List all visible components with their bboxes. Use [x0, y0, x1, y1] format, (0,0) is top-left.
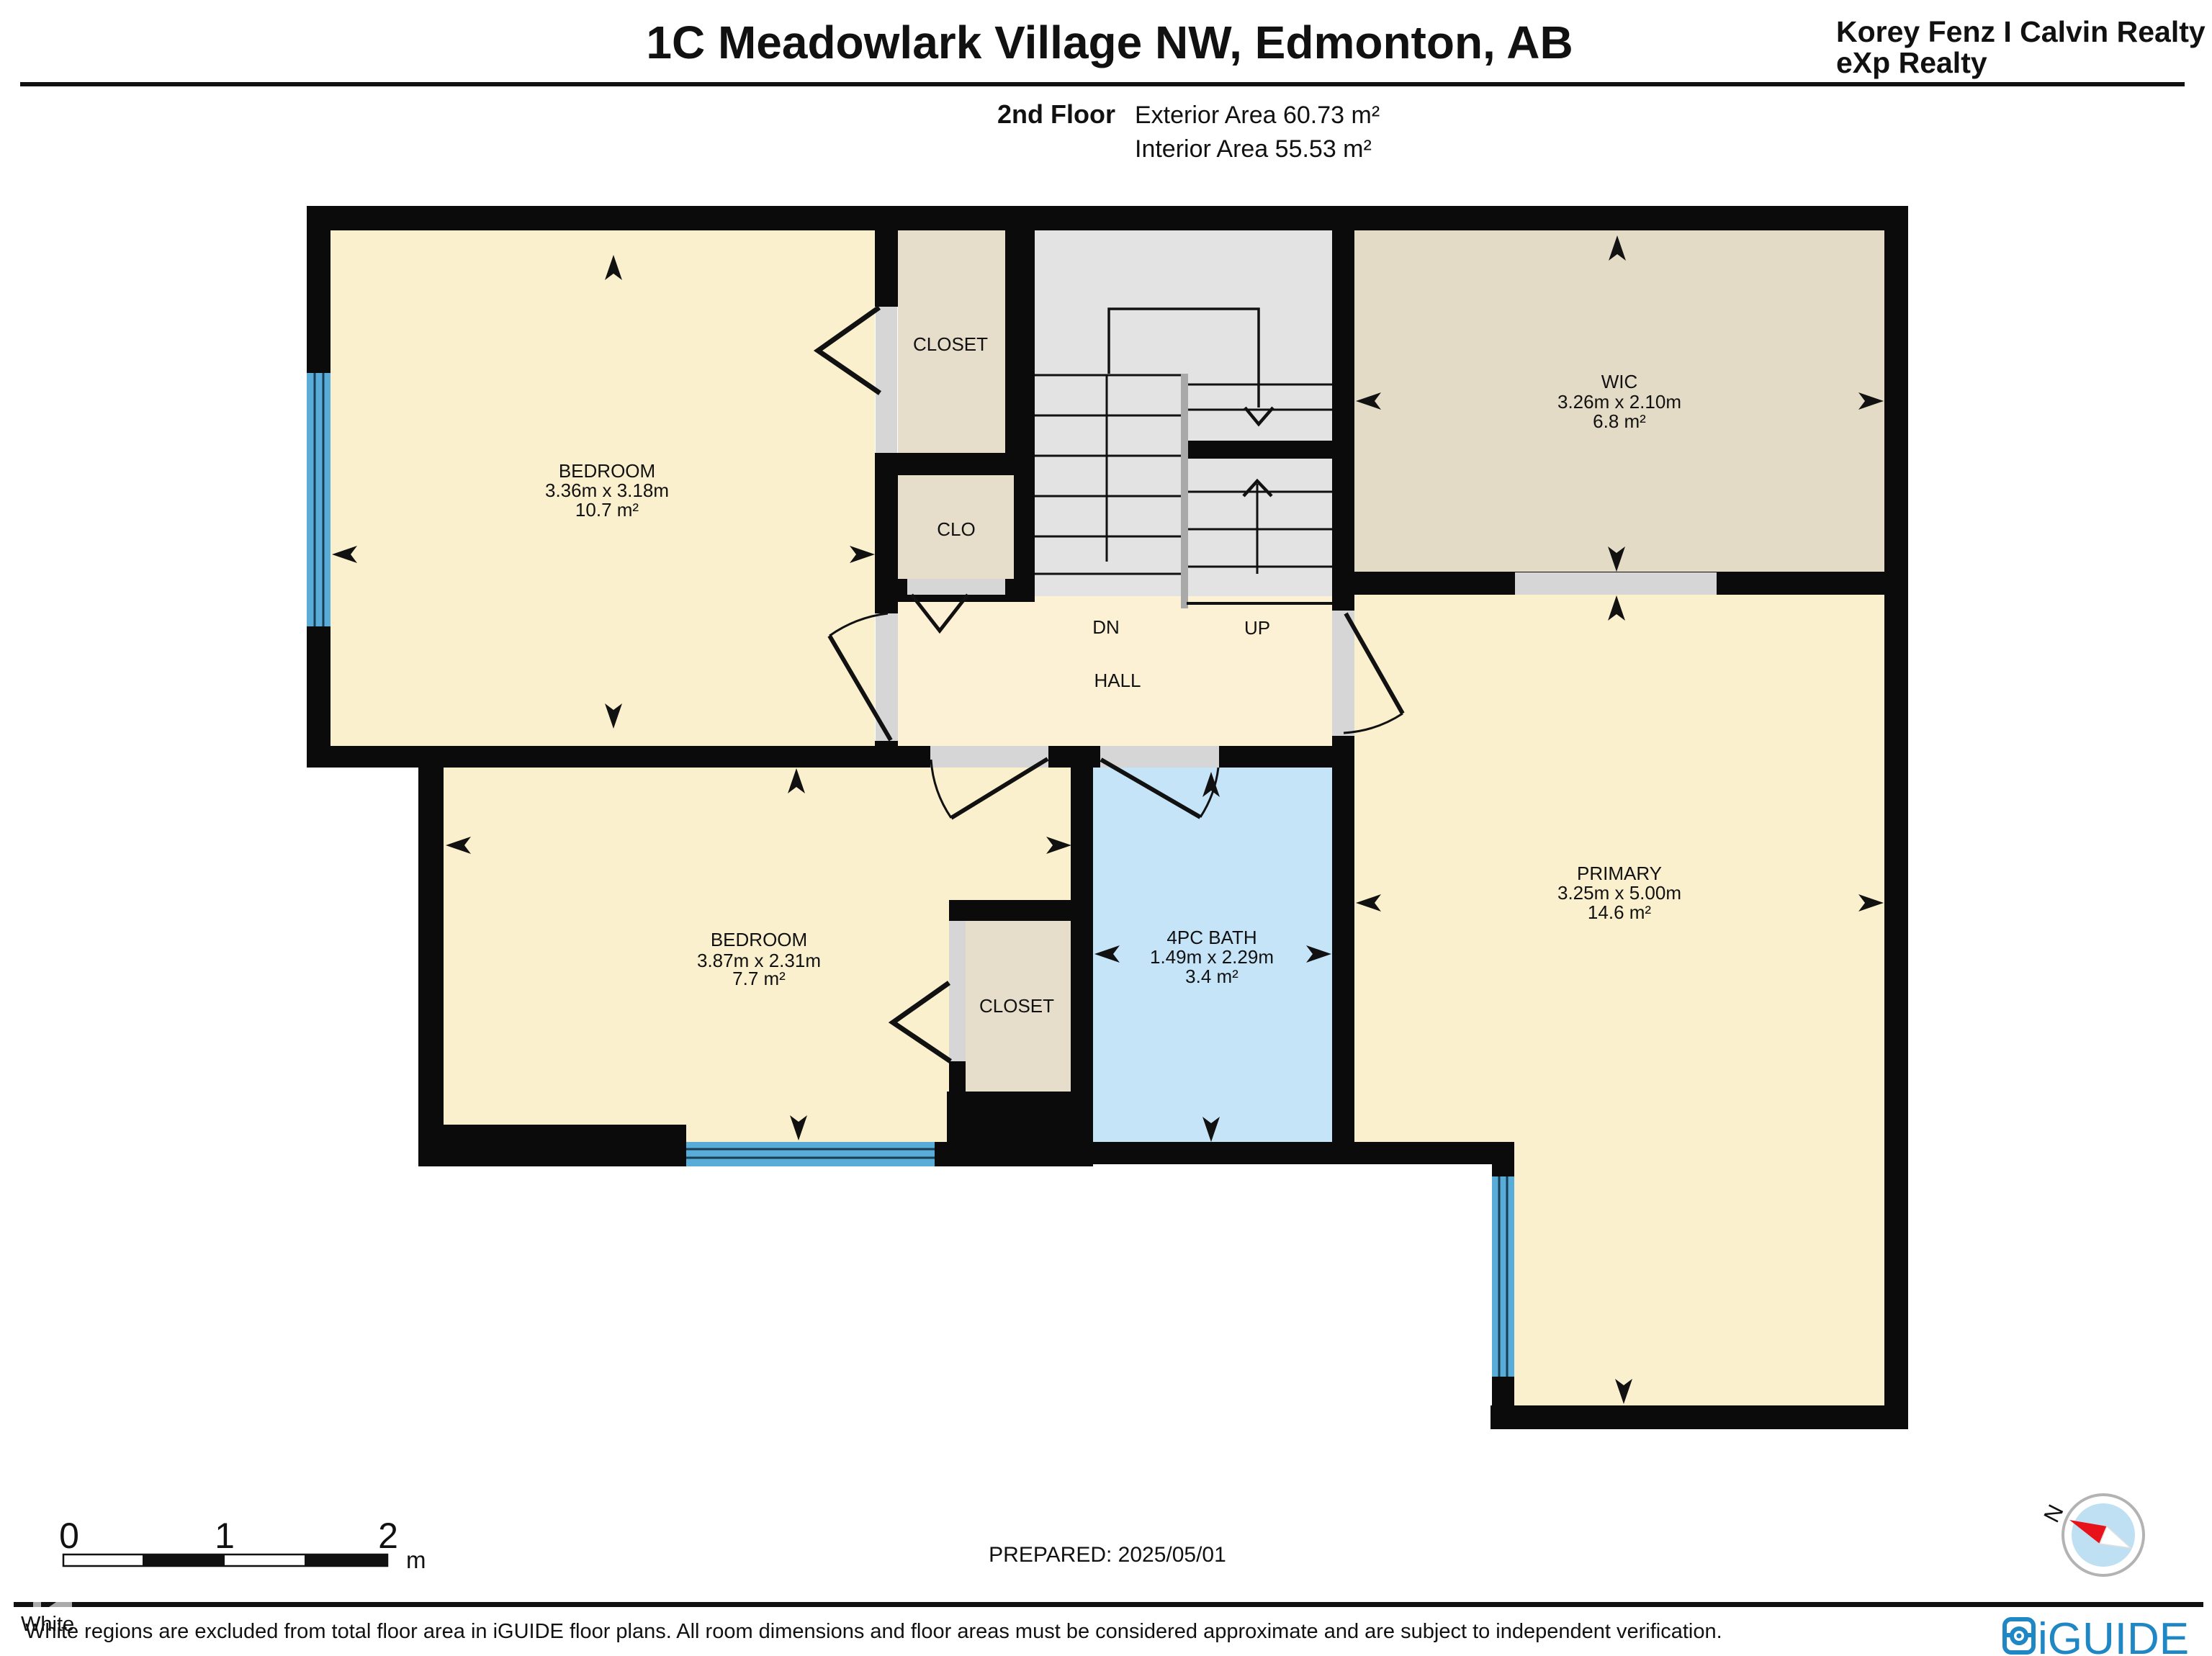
- svg-text:iGUIDE: iGUIDE: [2038, 1614, 2189, 1656]
- svg-text:7.7 m²: 7.7 m²: [732, 968, 786, 989]
- svg-text:3.4 m²: 3.4 m²: [1185, 966, 1238, 987]
- svg-text:HALL: HALL: [1094, 670, 1141, 691]
- svg-text:1C Meadowlark Village NW, Edmo: 1C Meadowlark Village NW, Edmonton, AB: [646, 17, 1573, 68]
- svg-text:Korey Fenz I Calvin Realty: Korey Fenz I Calvin Realty: [1836, 15, 2206, 48]
- svg-text:UP: UP: [1244, 617, 1270, 639]
- svg-text:m: m: [406, 1547, 426, 1573]
- svg-text:2: 2: [378, 1516, 398, 1556]
- svg-text:BEDROOM: BEDROOM: [711, 929, 807, 950]
- svg-text:6.8 m²: 6.8 m²: [1593, 410, 1646, 432]
- svg-text:PRIMARY: PRIMARY: [1577, 863, 1662, 884]
- svg-text:BEDROOM: BEDROOM: [559, 460, 655, 482]
- svg-text:WIC: WIC: [1601, 371, 1638, 392]
- svg-text:CLO: CLO: [937, 518, 975, 540]
- svg-text:PREPARED: 2025/05/01: PREPARED: 2025/05/01: [989, 1543, 1226, 1567]
- svg-text:Exterior Area 60.73 m²: Exterior Area 60.73 m²: [1135, 102, 1380, 129]
- svg-text:14.6 m²: 14.6 m²: [1588, 901, 1651, 923]
- svg-text:1: 1: [215, 1516, 235, 1556]
- svg-text:3.25m x 5.00m: 3.25m x 5.00m: [1557, 882, 1681, 904]
- svg-text:eXp Realty: eXp Realty: [1836, 46, 1987, 79]
- svg-text:CLOSET: CLOSET: [913, 333, 988, 355]
- svg-text:3.26m x 2.10m: 3.26m x 2.10m: [1557, 391, 1681, 413]
- svg-text:2nd Floor: 2nd Floor: [997, 99, 1115, 129]
- svg-text:1.49m x 2.29m: 1.49m x 2.29m: [1150, 946, 1274, 968]
- svg-text:DN: DN: [1092, 616, 1120, 638]
- svg-text:Interior Area 55.53 m²: Interior Area 55.53 m²: [1135, 135, 1372, 163]
- svg-text:0: 0: [59, 1516, 79, 1556]
- svg-text:White regions are excluded fro: White regions are excluded from total fl…: [25, 1620, 1722, 1643]
- svg-text:CLOSET: CLOSET: [979, 995, 1054, 1017]
- svg-text:3.36m x 3.18m: 3.36m x 3.18m: [545, 480, 669, 501]
- svg-text:4PC BATH: 4PC BATH: [1166, 927, 1256, 948]
- svg-text:10.7 m²: 10.7 m²: [575, 499, 639, 521]
